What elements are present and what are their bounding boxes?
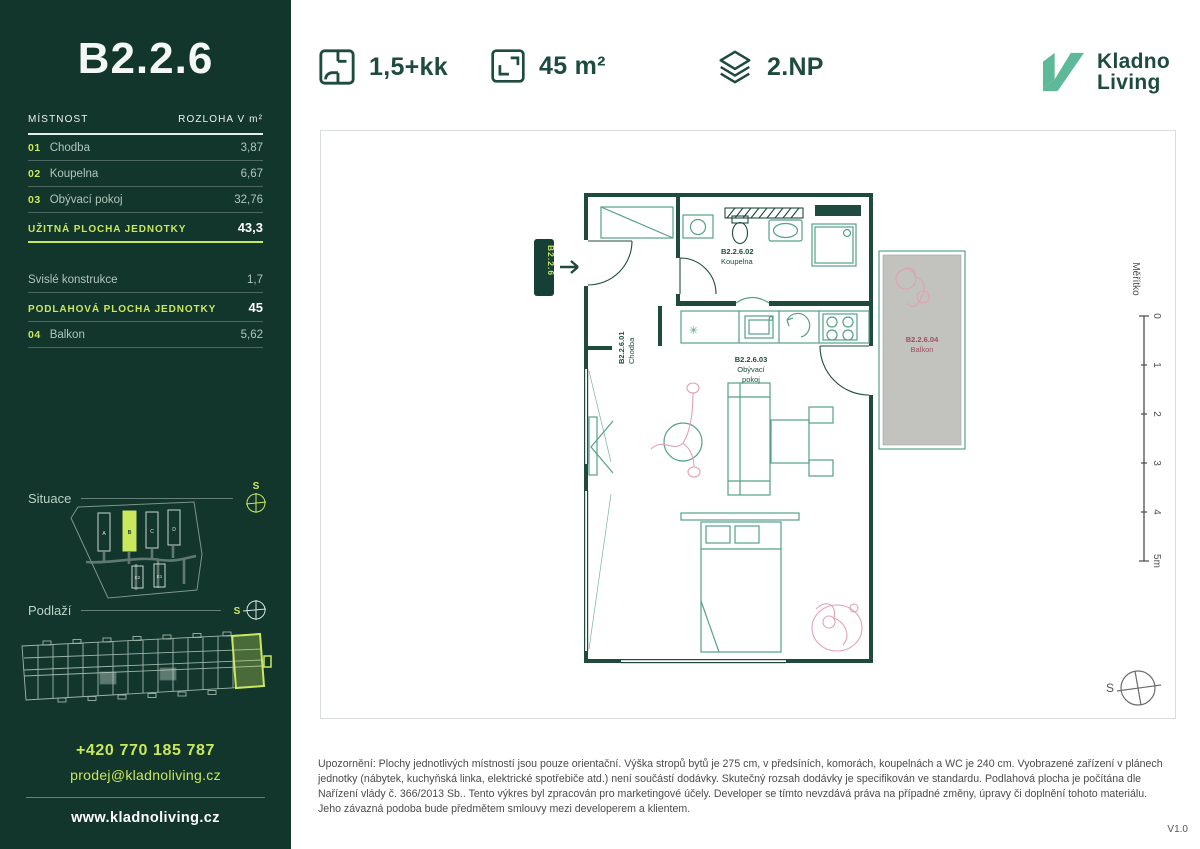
- svg-text:Balkon: Balkon: [911, 345, 934, 354]
- balcony: B2.2.6.04 Balkon: [879, 251, 965, 449]
- disclaimer-text: Upozornění: Plochy jednotlivých místnost…: [318, 757, 1166, 817]
- svg-text:Koupelna: Koupelna: [721, 257, 754, 266]
- room-name: Koupelna: [50, 168, 241, 180]
- svg-text:3: 3: [1151, 460, 1162, 466]
- layers-icon: [716, 48, 754, 86]
- area-value: 45 m²: [539, 52, 606, 81]
- window-marks: [589, 371, 611, 649]
- svg-text:S: S: [253, 481, 260, 492]
- table-row: 02 Koupelna 6,67: [28, 161, 263, 187]
- brochure-page: B2.2.6 MÍSTNOST ROZLOHA V m² 01 Chodba 3…: [0, 0, 1200, 849]
- svg-text:1: 1: [1151, 362, 1162, 368]
- svg-text:B2.2.6.03: B2.2.6.03: [735, 355, 768, 364]
- bathroom-fixtures: [683, 208, 856, 266]
- floor-strip-outline: [22, 632, 264, 702]
- highlighted-unit: [232, 634, 271, 688]
- balcony-row: 04 Balkon 5,62: [28, 322, 263, 348]
- sidebar: B2.2.6 MÍSTNOST ROZLOHA V m² 01 Chodba 3…: [0, 0, 291, 849]
- svg-text:E1: E1: [157, 574, 163, 579]
- version-label: V1.0: [1150, 824, 1188, 835]
- room-area: 3,87: [241, 142, 263, 154]
- floorplan-icon: [318, 48, 356, 86]
- svg-text:S: S: [234, 606, 241, 617]
- situace-label: Situace: [28, 491, 71, 506]
- room-number: 03: [28, 194, 41, 206]
- vertical-structures-label: Svislé konstrukce: [28, 274, 247, 286]
- svg-text:B2.2.6.02: B2.2.6.02: [721, 247, 754, 256]
- entry-tag: B2.2.6: [534, 239, 578, 296]
- table-row: 03 Obývací pokoj 32,76: [28, 187, 263, 213]
- svg-text:Obývací: Obývací: [737, 365, 765, 374]
- floor-strip: [18, 624, 274, 714]
- website-link[interactable]: www.kladnoliving.cz: [0, 810, 291, 826]
- contact-block: +420 770 185 787 prodej@kladnoliving.cz …: [0, 742, 291, 826]
- floor-value: 2.NP: [767, 53, 824, 82]
- phone-link[interactable]: +420 770 185 787: [0, 742, 291, 760]
- contact-divider: [26, 797, 265, 798]
- kitchen-fixtures: ✳: [681, 311, 869, 343]
- svg-text:C: C: [150, 529, 154, 535]
- floorplan-drawing: B2.2.6: [321, 131, 1175, 718]
- vertical-structures-row: Svislé konstrukce 1,7: [28, 267, 263, 293]
- brand-logo: Kladno Living: [1037, 50, 1170, 94]
- kitchen-symbol: ✳: [689, 325, 698, 337]
- room-number: 01: [28, 142, 41, 154]
- living-furniture: [589, 383, 833, 652]
- table-row: 01 Chodba 3,87: [28, 135, 263, 161]
- svg-text:2: 2: [1151, 411, 1162, 417]
- svg-text:B2.2.6.01: B2.2.6.01: [617, 331, 626, 364]
- layout-spec: 1,5+kk: [318, 48, 448, 86]
- scale-bar: Měřítko 0 1 2 3 4 5m: [1130, 262, 1162, 568]
- summary-table: Svislé konstrukce 1,7 PODLAHOVÁ PLOCHA J…: [28, 267, 263, 348]
- room-table: MÍSTNOST ROZLOHA V m² 01 Chodba 3,87 02 …: [28, 114, 263, 243]
- floor-area-label: PODLAHOVÁ PLOCHA JEDNOTKY: [28, 304, 249, 315]
- floor-area-row: PODLAHOVÁ PLOCHA JEDNOTKY 45: [28, 293, 263, 322]
- svg-text:B2.2.6.04: B2.2.6.04: [906, 335, 939, 344]
- floor-spec: 2.NP: [716, 48, 824, 86]
- svg-text:B2.2.6: B2.2.6: [546, 245, 556, 276]
- room-number: 02: [28, 168, 41, 180]
- email-link[interactable]: prodej@kladnoliving.cz: [0, 767, 291, 783]
- usable-area-row: UŽITNÁ PLOCHA JEDNOTKY 43,3: [28, 213, 263, 243]
- podlazi-label: Podlaží: [28, 603, 71, 618]
- site-plan: A B C D E2 E1: [66, 498, 216, 606]
- entry-arrow-icon: [560, 261, 578, 273]
- site-roads: [86, 546, 196, 590]
- floorplan-panel: B2.2.6: [320, 130, 1176, 719]
- svg-text:5m: 5m: [1151, 554, 1162, 568]
- podlazi-section: Podlaží S: [28, 598, 269, 622]
- compass-icon: S: [231, 598, 269, 622]
- svg-text:pokoj: pokoj: [742, 375, 760, 384]
- col-room: MÍSTNOST: [28, 114, 88, 125]
- brand-name: Kladno Living: [1097, 51, 1170, 94]
- room-table-header: MÍSTNOST ROZLOHA V m²: [28, 114, 263, 135]
- svg-text:B: B: [128, 530, 132, 536]
- compass-icon: S: [243, 480, 269, 516]
- room-area: 32,76: [234, 194, 263, 206]
- svg-text:S: S: [1106, 681, 1114, 695]
- svg-text:4: 4: [1151, 509, 1162, 515]
- vertical-structures-value: 1,7: [247, 274, 263, 286]
- svg-text:Měřítko: Měřítko: [1130, 262, 1141, 296]
- balcony-area: 5,62: [241, 329, 263, 341]
- balcony-number: 04: [28, 329, 41, 341]
- col-area: ROZLOHA V m²: [178, 114, 263, 125]
- svg-text:Chodba: Chodba: [627, 337, 636, 364]
- area-icon: [490, 48, 526, 84]
- svg-text:E2: E2: [135, 575, 141, 580]
- room-name: Chodba: [50, 142, 241, 154]
- svg-text:D: D: [172, 527, 176, 533]
- svg-text:0: 0: [1151, 313, 1162, 319]
- area-spec: 45 m²: [490, 48, 606, 84]
- compass-icon: S: [1106, 671, 1161, 705]
- usable-area-value: 43,3: [238, 220, 263, 235]
- svg-text:A: A: [102, 531, 106, 537]
- usable-area-label: UŽITNÁ PLOCHA JEDNOTKY: [28, 224, 238, 235]
- hall-closet: [601, 207, 673, 238]
- kladno-living-logo-icon: [1037, 50, 1087, 94]
- unit-title: B2.2.6: [0, 34, 291, 84]
- room-area: 6,67: [241, 168, 263, 180]
- floor-area-value: 45: [249, 300, 263, 315]
- site-buildings: A B C D E2 E1: [98, 510, 180, 588]
- balcony-name: Balkon: [50, 329, 241, 341]
- podlazi-rule: [81, 610, 221, 611]
- layout-value: 1,5+kk: [369, 53, 448, 82]
- room-name: Obývací pokoj: [50, 194, 235, 206]
